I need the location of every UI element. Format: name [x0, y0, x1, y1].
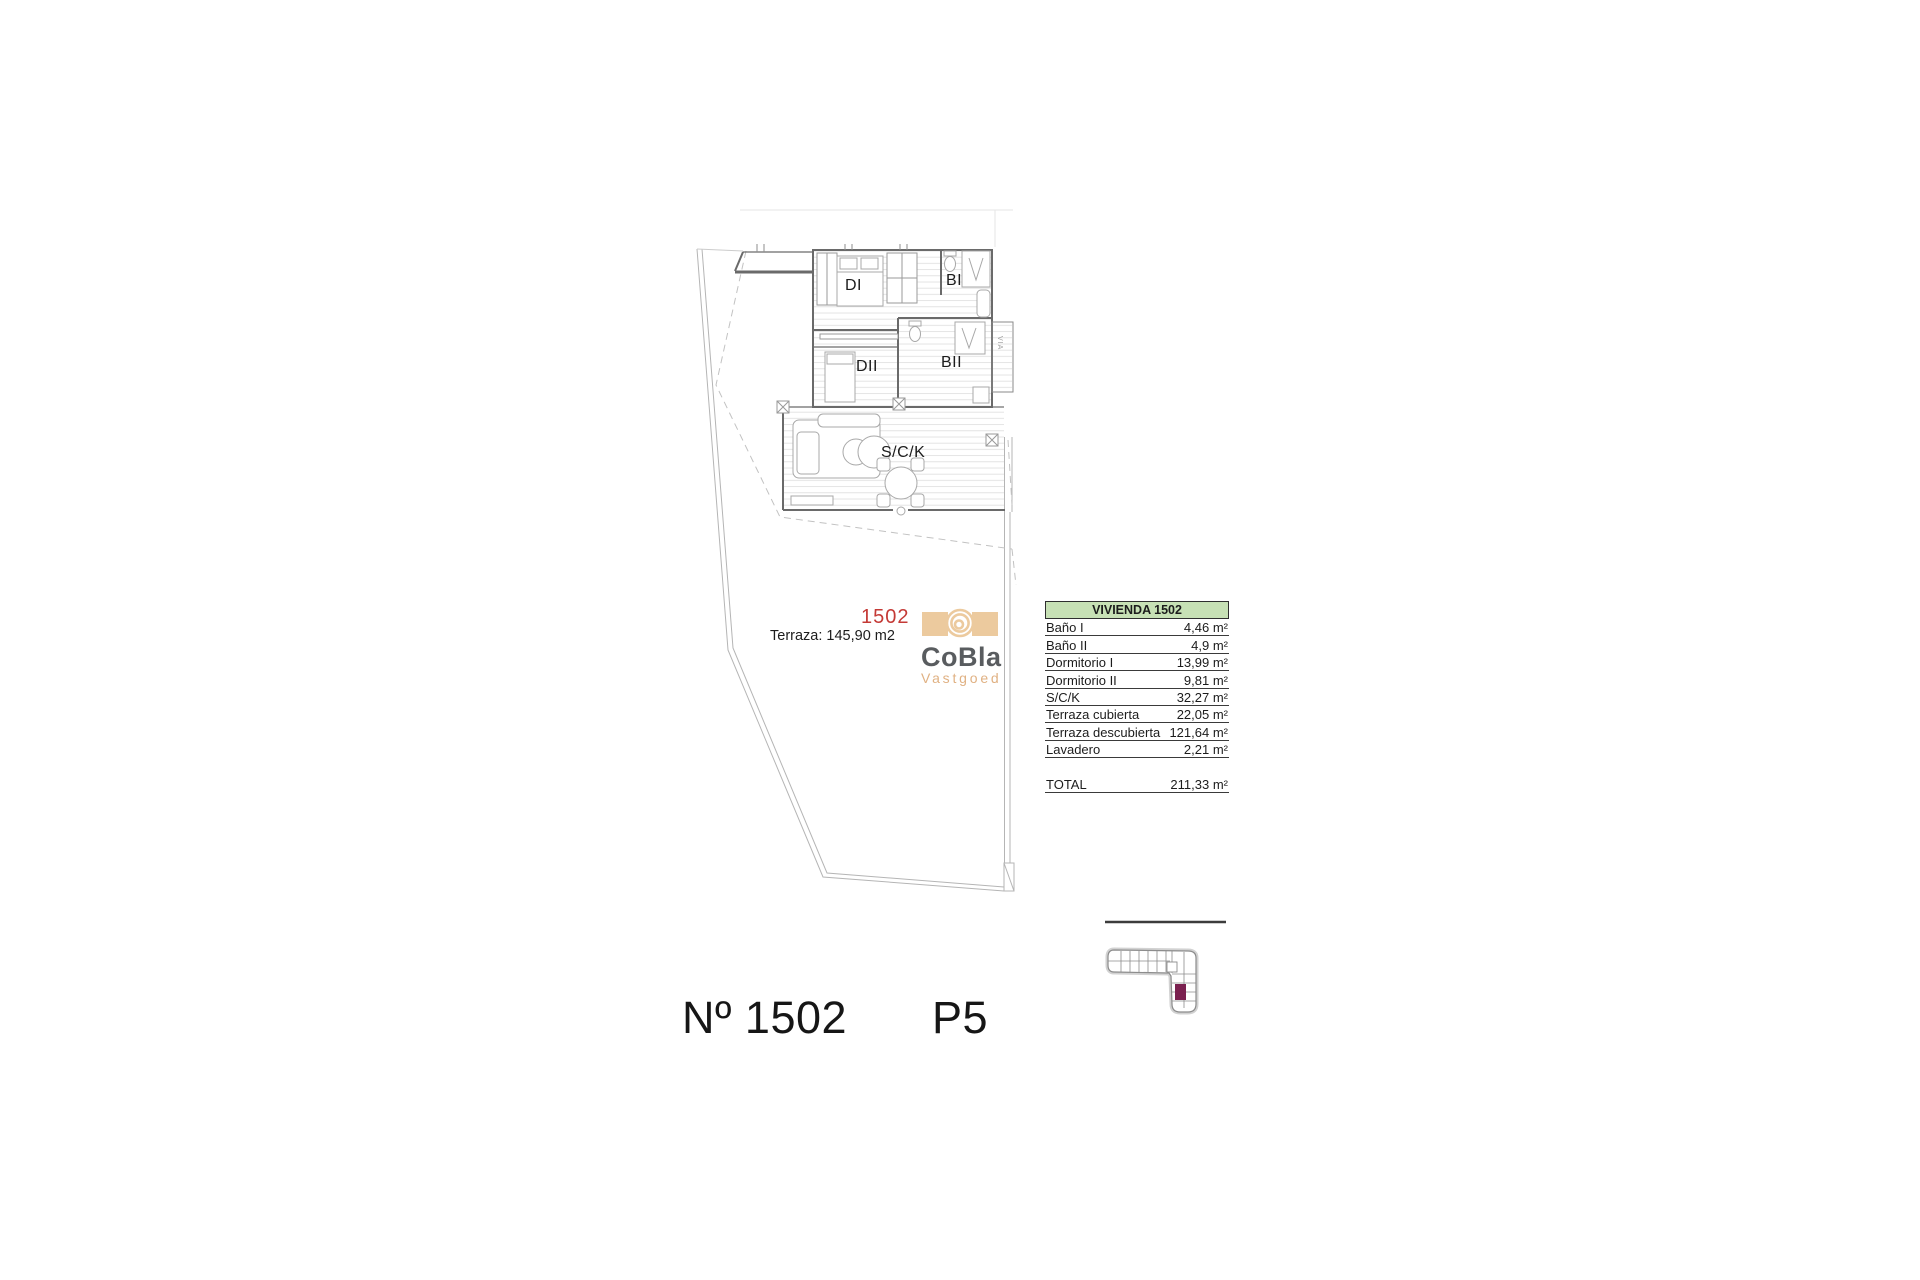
unit-number-label: 1502	[861, 606, 910, 629]
table-row: Baño II 4,9 m²	[1045, 636, 1229, 653]
footer-floor-number: P5	[932, 992, 988, 1044]
row-label: Lavadero	[1046, 742, 1100, 757]
room-label-bano-1: BI	[946, 272, 962, 290]
floor-plan-sheet: DI BI DII BII S/C/K VIA 1502 Terraza: 14…	[0, 0, 1920, 1280]
room-label-bano-2: BII	[941, 354, 962, 372]
area-table-header: VIVIENDA 1502	[1045, 601, 1229, 619]
table-row: S/C/K 32,27 m²	[1045, 689, 1229, 706]
keyplan-corner-cell	[1167, 962, 1177, 972]
brand-logo-icon	[921, 606, 999, 639]
table-row: Terraza cubierta 22,05 m²	[1045, 706, 1229, 723]
row-value: 9,81 m²	[1184, 673, 1228, 688]
keyplan	[1105, 922, 1226, 1012]
row-value: 13,99 m²	[1177, 655, 1228, 670]
table-row: Baño I 4,46 m²	[1045, 619, 1229, 636]
keyplan-highlighted-unit	[1175, 984, 1186, 1000]
row-label: Terraza cubierta	[1046, 707, 1139, 722]
brand-logo-title: CoBla	[921, 644, 1001, 671]
brand-logo-subtitle: Vastgoed	[921, 671, 1001, 685]
table-row: Dormitorio I 13,99 m²	[1045, 654, 1229, 671]
row-value: 22,05 m²	[1177, 707, 1228, 722]
row-value: 121,64 m²	[1169, 725, 1228, 740]
row-value: 2,21 m²	[1184, 742, 1228, 757]
room-label-salon: S/C/K	[881, 444, 925, 462]
table-row: Terraza descubierta 121,64 m²	[1045, 723, 1229, 740]
shaft-label: VIA	[996, 336, 1003, 350]
table-total-row: TOTAL 211,33 m²	[1045, 775, 1229, 792]
table-row: Dormitorio II 9,81 m²	[1045, 671, 1229, 688]
room-label-dormitorio-1: DI	[845, 277, 862, 295]
row-value: 32,27 m²	[1177, 690, 1228, 705]
row-label: Dormitorio I	[1046, 655, 1113, 670]
footer-unit-number: Nº 1502	[682, 992, 847, 1044]
row-value: 4,9 m²	[1191, 638, 1228, 653]
row-label: Terraza descubierta	[1046, 725, 1160, 740]
area-table: VIVIENDA 1502 Baño I 4,46 m² Baño II 4,9…	[1045, 601, 1229, 793]
total-label: TOTAL	[1046, 777, 1087, 792]
row-label: Baño I	[1046, 620, 1084, 635]
room-label-dormitorio-2: DII	[856, 358, 878, 376]
table-row: Lavadero 2,21 m²	[1045, 741, 1229, 758]
row-value: 4,46 m²	[1184, 620, 1228, 635]
row-label: Dormitorio II	[1046, 673, 1117, 688]
context-lines	[740, 210, 1013, 247]
total-value: 211,33 m²	[1170, 777, 1228, 792]
brand-logo: CoBla Vastgoed	[921, 606, 1001, 685]
terrace-area-label: Terraza: 145,90 m2	[770, 628, 895, 644]
row-label: Baño II	[1046, 638, 1087, 653]
row-label: S/C/K	[1046, 690, 1080, 705]
